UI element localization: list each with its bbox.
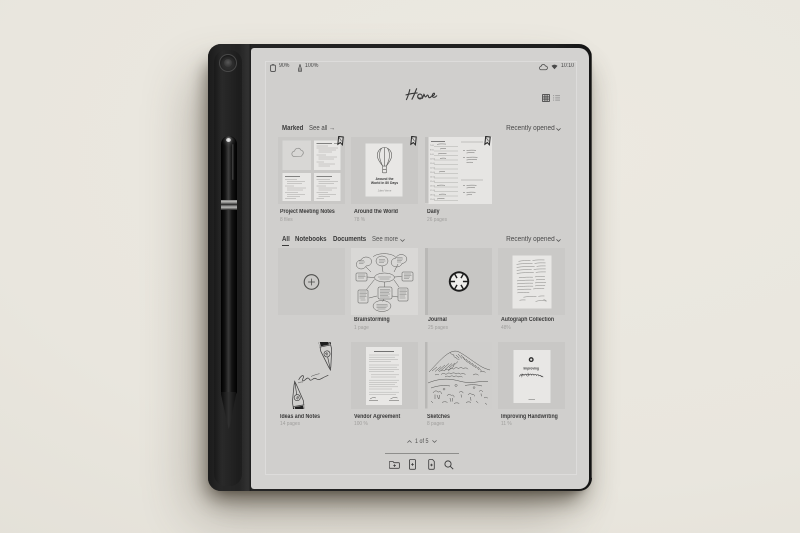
svg-text:17:00: 17:00 [430,190,436,192]
svg-text:14:00: 14:00 [430,177,436,179]
svg-text:12:00: 12:00 [430,168,436,170]
svg-text:16:00: 16:00 [430,186,436,188]
svg-text:10:00: 10:00 [430,159,436,161]
svg-text:Improving: Improving [523,366,538,370]
svg-text:18:00: 18:00 [430,195,436,197]
svg-text:Jules Verne: Jules Verne [378,189,392,193]
svg-text:World in 80 Days: World in 80 Days [371,181,398,185]
svg-text:15:00: 15:00 [430,181,436,183]
svg-text:13:00: 13:00 [430,172,436,174]
svg-text:19:00: 19:00 [430,199,436,201]
